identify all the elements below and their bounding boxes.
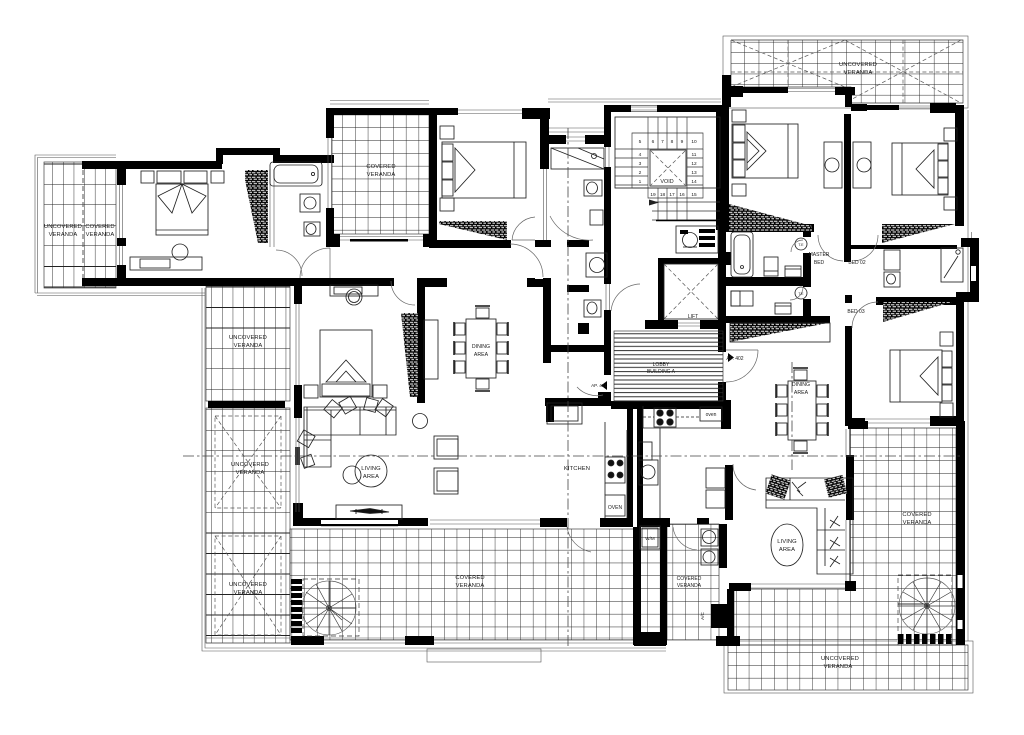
svg-text:15: 15 — [691, 192, 697, 198]
svg-text:VOID: VOID — [660, 179, 673, 185]
svg-text:DINING: DINING — [472, 344, 490, 350]
svg-text:2: 2 — [639, 170, 642, 176]
svg-text:AP. 402: AP. 402 — [726, 356, 743, 362]
svg-text:KITCHEN: KITCHEN — [564, 466, 590, 472]
svg-text:UNCOVERED: UNCOVERED — [839, 62, 877, 68]
svg-text:UNCOVERED: UNCOVERED — [44, 224, 82, 230]
svg-text:COVERED: COVERED — [366, 164, 395, 170]
svg-text:6: 6 — [652, 139, 655, 145]
svg-text:VERANDA: VERANDA — [234, 343, 263, 349]
svg-text:COVERED: COVERED — [455, 575, 484, 581]
svg-text:LIVING: LIVING — [777, 539, 797, 545]
svg-text:W/M: W/M — [645, 536, 655, 541]
svg-text:AREA: AREA — [474, 352, 489, 358]
svg-text:BUILDING A: BUILDING A — [647, 369, 676, 375]
svg-text:3: 3 — [639, 161, 642, 167]
svg-text:oven: oven — [706, 412, 717, 418]
svg-text:9: 9 — [681, 139, 684, 145]
svg-text:VERANDA: VERANDA — [236, 470, 265, 476]
svg-text:VERANDA: VERANDA — [677, 583, 702, 589]
svg-text:UNCOVERED: UNCOVERED — [231, 462, 269, 468]
svg-text:AREA: AREA — [794, 390, 809, 396]
svg-text:BED 02: BED 02 — [848, 260, 865, 266]
svg-text:VERANDA: VERANDA — [824, 664, 853, 670]
svg-text:16: 16 — [679, 192, 685, 198]
svg-text:8: 8 — [671, 139, 674, 145]
svg-text:14: 14 — [691, 179, 697, 185]
svg-text:7: 7 — [661, 139, 664, 145]
svg-text:T.E: T.E — [798, 243, 804, 247]
svg-text:A/C: A/C — [700, 611, 705, 619]
svg-text:VERANDA: VERANDA — [844, 70, 873, 76]
svg-text:11: 11 — [692, 152, 697, 158]
svg-text:COVERED: COVERED — [85, 224, 114, 230]
svg-text:13: 13 — [691, 170, 697, 176]
svg-text:LOBBY: LOBBY — [653, 362, 670, 368]
svg-text:LIFT: LIFT — [688, 314, 698, 320]
svg-text:DINING: DINING — [792, 382, 810, 388]
svg-text:BED 03: BED 03 — [847, 309, 864, 315]
svg-text:UNCOVERED: UNCOVERED — [821, 656, 859, 662]
svg-text:VERANDA: VERANDA — [456, 583, 485, 589]
svg-text:UNCOVERED: UNCOVERED — [229, 335, 267, 341]
svg-text:1: 1 — [639, 179, 642, 185]
svg-text:COVERED: COVERED — [677, 576, 702, 582]
svg-text:COVERED: COVERED — [902, 512, 931, 518]
svg-text:VERANDA: VERANDA — [367, 172, 396, 178]
svg-text:VERANDA: VERANDA — [234, 590, 263, 596]
svg-text:VERANDA: VERANDA — [86, 232, 115, 238]
svg-text:MASTER: MASTER — [809, 252, 830, 258]
svg-text:19: 19 — [650, 192, 656, 198]
svg-text:12: 12 — [691, 161, 697, 167]
svg-text:AREA: AREA — [779, 547, 795, 553]
svg-text:T.E: T.E — [798, 292, 804, 296]
svg-text:5: 5 — [639, 139, 642, 145]
svg-text:10: 10 — [691, 139, 697, 145]
svg-text:AREA: AREA — [363, 474, 379, 480]
svg-text:17: 17 — [669, 192, 675, 198]
svg-text:LIVING: LIVING — [361, 466, 381, 472]
svg-text:VERANDA: VERANDA — [49, 232, 78, 238]
svg-text:OVEN: OVEN — [608, 505, 623, 511]
svg-text:BED: BED — [814, 260, 825, 266]
svg-text:18: 18 — [660, 192, 666, 198]
svg-text:4: 4 — [639, 152, 642, 158]
svg-text:VERANDA: VERANDA — [903, 520, 932, 526]
svg-text:AP. 401: AP. 401 — [591, 383, 607, 388]
svg-text:UNCOVERED: UNCOVERED — [229, 582, 267, 588]
